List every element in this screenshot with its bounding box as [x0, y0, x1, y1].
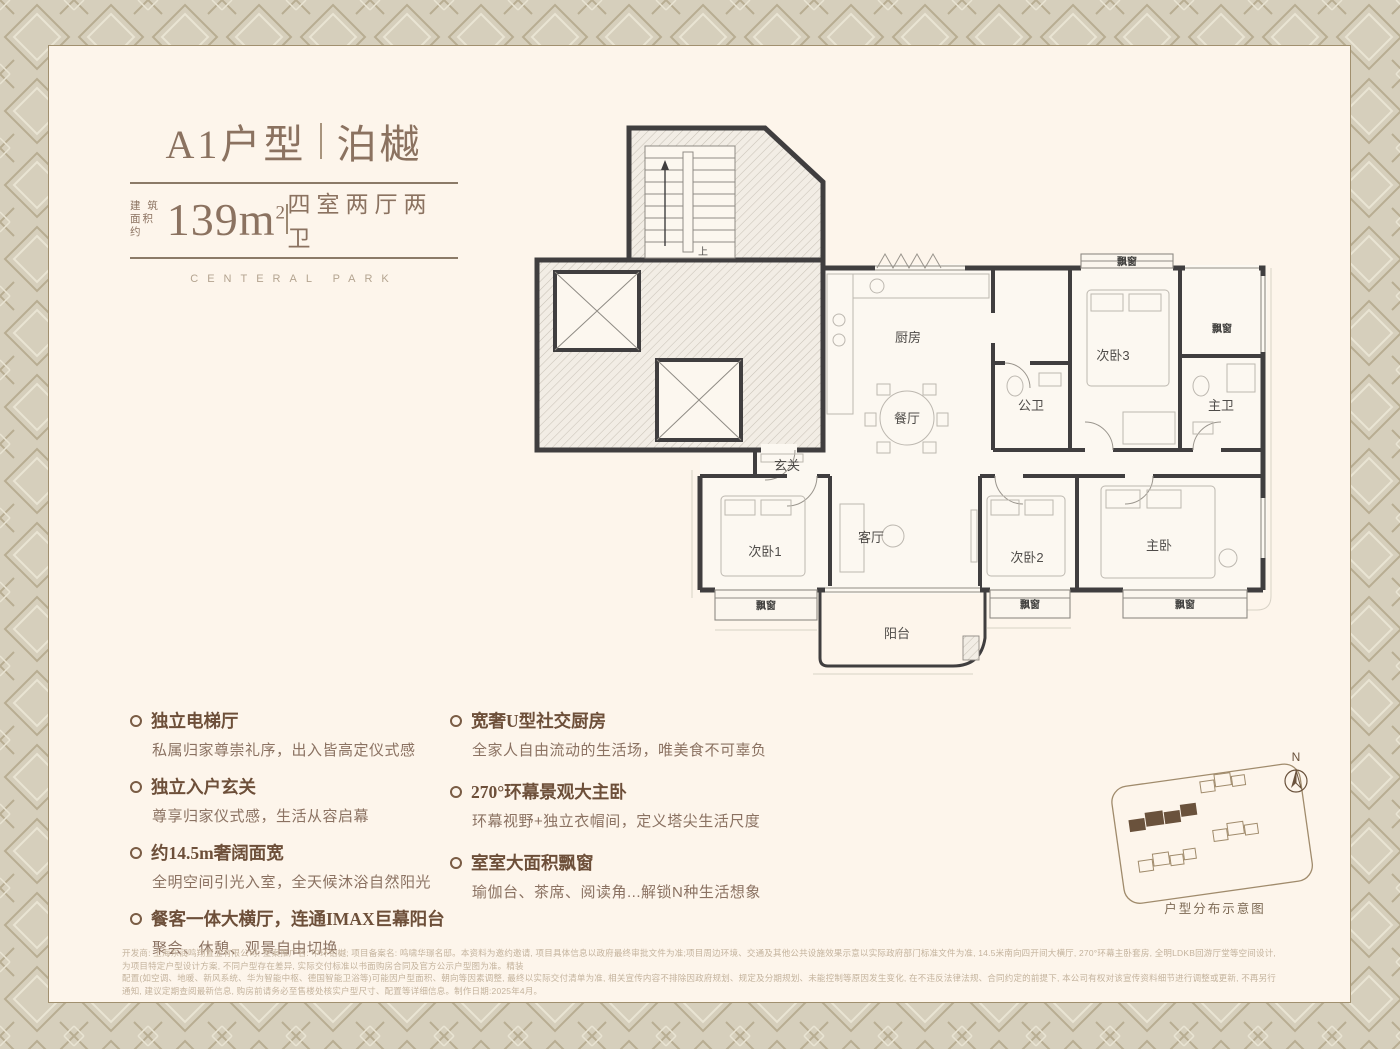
room-bedroom3: 次卧3	[1096, 348, 1129, 363]
bay-window-label: 飘窗	[756, 599, 776, 612]
room-bedroom2: 次卧2	[1010, 550, 1043, 565]
bullet-icon	[450, 715, 462, 727]
unit-name: 泊樾	[336, 112, 422, 170]
bay-window-label: 飘窗	[1117, 255, 1137, 268]
rule-bottom	[130, 257, 458, 259]
highlighted-building	[1127, 803, 1198, 832]
upper-floor-area	[823, 268, 1263, 450]
bullet-icon	[130, 913, 142, 925]
room-public-bath: 公卫	[1018, 398, 1044, 413]
disclaimer-line2: 配置(如空调、地暖、新风系统、华为智能中枢、德国智能卫浴等)可能因户型面积、朝向…	[122, 972, 1282, 997]
feature-item: 270°环幕景观大主卧 环幕视野+独立衣帽间，定义塔尖生活尺度	[450, 779, 795, 831]
room-master-bath: 主卫	[1208, 398, 1234, 413]
siteplan-caption: 户型分布示意图	[1095, 898, 1335, 917]
feature-desc: 全家人自由流动的生活场，唯美食不可辜负	[472, 739, 795, 760]
feature-item: 宽奢U型社交厨房 全家人自由流动的生活场，唯美食不可辜负	[450, 708, 795, 760]
feature-title: 室室大面积飘窗	[471, 850, 594, 875]
core-area: 上	[537, 128, 823, 480]
page-title: A1户型 泊樾	[130, 112, 458, 170]
stairs-up-label: 上	[698, 246, 708, 258]
bullet-icon	[130, 715, 142, 727]
stairs-icon: 上	[645, 146, 735, 258]
features-left: 独立电梯厅 私属归家尊崇礼序，出入皆高定仪式感 独立入户玄关 尊享归家仪式感，生…	[130, 708, 475, 958]
north-arrow-icon: N	[1278, 748, 1314, 802]
area-row: 建 筑 面积约 139m2 四室两厅两卫	[130, 193, 458, 245]
feature-desc: 环幕视野+独立衣帽间，定义塔尖生活尺度	[472, 810, 795, 831]
room-foyer: 玄关	[774, 458, 800, 473]
feature-desc: 尊享归家仪式感，生活从容启幕	[152, 805, 475, 826]
area-value: 139m2	[167, 193, 286, 246]
feature-title: 宽奢U型社交厨房	[471, 708, 606, 733]
elevator-icon	[657, 360, 741, 440]
rooms-desc: 四室两厅两卫	[288, 185, 459, 253]
room-dining: 餐厅	[894, 411, 920, 426]
feature-title: 独立电梯厅	[151, 708, 239, 733]
feature-item: 独立入户玄关 尊享归家仪式感，生活从容启幕	[130, 774, 475, 826]
area-prefix-line2: 面积约	[130, 213, 167, 239]
subtitle-en: CENTERAL PARK	[130, 273, 458, 285]
room-living: 客厅	[858, 530, 884, 545]
bullet-icon	[130, 781, 142, 793]
features-right: 宽奢U型社交厨房 全家人自由流动的生活场，唯美食不可辜负 270°环幕景观大主卧…	[450, 708, 795, 902]
elevator-icon	[555, 272, 639, 350]
feature-desc: 私属归家尊崇礼序，出入皆高定仪式感	[152, 739, 475, 760]
bullet-icon	[450, 786, 462, 798]
bay-window-label: 飘窗	[1212, 322, 1232, 335]
disclaimer: 开发商: 上海东润鸣翔置业有限公司; 整案推广名: 中环铂樾; 项目备案名: 鸣…	[122, 947, 1282, 997]
title-divider	[320, 123, 322, 159]
north-label: N	[1292, 750, 1301, 764]
feature-desc: 全明空间引光入室，全天候沐浴自然阳光	[152, 871, 475, 892]
unit-type: A1户型	[166, 112, 307, 170]
bullet-icon	[130, 847, 142, 859]
floor-plan: 上	[525, 118, 1287, 693]
area-prefix-line1: 建 筑	[130, 200, 167, 213]
feature-title: 独立入户玄关	[151, 774, 256, 799]
bay-window-label: 飘窗	[1175, 598, 1195, 611]
room-bedroom1: 次卧1	[748, 544, 781, 559]
feature-title: 餐客一体大横厅，连通IMAX巨幕阳台	[151, 906, 445, 931]
feature-item: 独立电梯厅 私属归家尊崇礼序，出入皆高定仪式感	[130, 708, 475, 760]
feature-desc: 瑜伽台、茶席、阅读角...解锁N种生活想象	[472, 881, 795, 902]
area-prefix: 建 筑 面积约	[130, 200, 167, 239]
rule-top	[130, 182, 458, 184]
room-balcony: 阳台	[884, 626, 910, 641]
title-block: A1户型 泊樾 建 筑 面积约 139m2 四室两厅两卫 CENTERAL PA…	[130, 112, 458, 285]
feature-item: 室室大面积飘窗 瑜伽台、茶席、阅读角...解锁N种生活想象	[450, 850, 795, 902]
disclaimer-line1: 开发商: 上海东润鸣翔置业有限公司; 整案推广名: 中环铂樾; 项目备案名: 鸣…	[122, 947, 1282, 972]
feature-title: 约14.5m奢阔面宽	[151, 840, 284, 865]
bay-window-label: 飘窗	[1020, 598, 1040, 611]
feature-title: 270°环幕景观大主卧	[471, 779, 627, 804]
bullet-icon	[450, 857, 462, 869]
room-master-bedroom: 主卧	[1146, 538, 1172, 553]
feature-item: 约14.5m奢阔面宽 全明空间引光入室，全天候沐浴自然阳光	[130, 840, 475, 892]
room-kitchen: 厨房	[895, 330, 921, 345]
